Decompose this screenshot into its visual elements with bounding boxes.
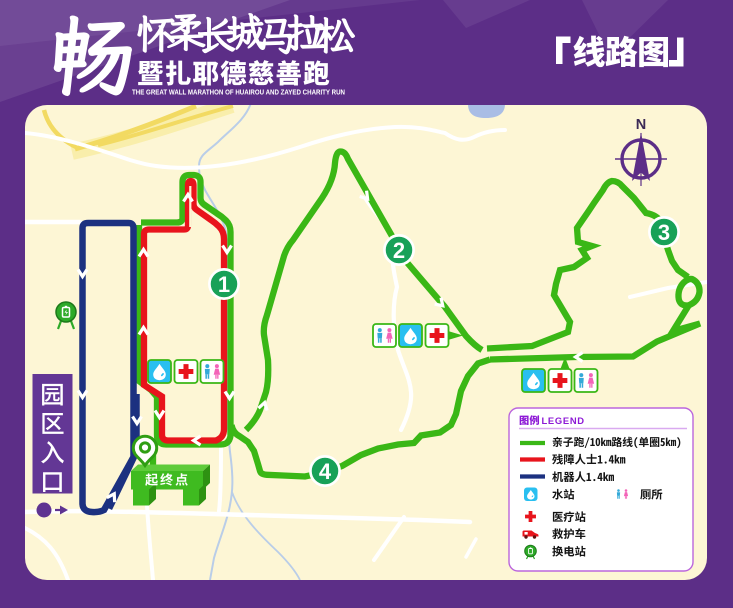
svg-text:1: 1	[218, 272, 230, 297]
svg-text:THE GREAT WALL MARATHON OF HUA: THE GREAT WALL MARATHON OF HUAIROU AND Z…	[132, 88, 345, 97]
svg-text:LEGEND: LEGEND	[542, 415, 585, 426]
svg-text:3: 3	[658, 220, 670, 245]
svg-text:2: 2	[393, 238, 405, 263]
svg-text:N: N	[636, 117, 646, 133]
svg-text:4: 4	[319, 459, 332, 484]
